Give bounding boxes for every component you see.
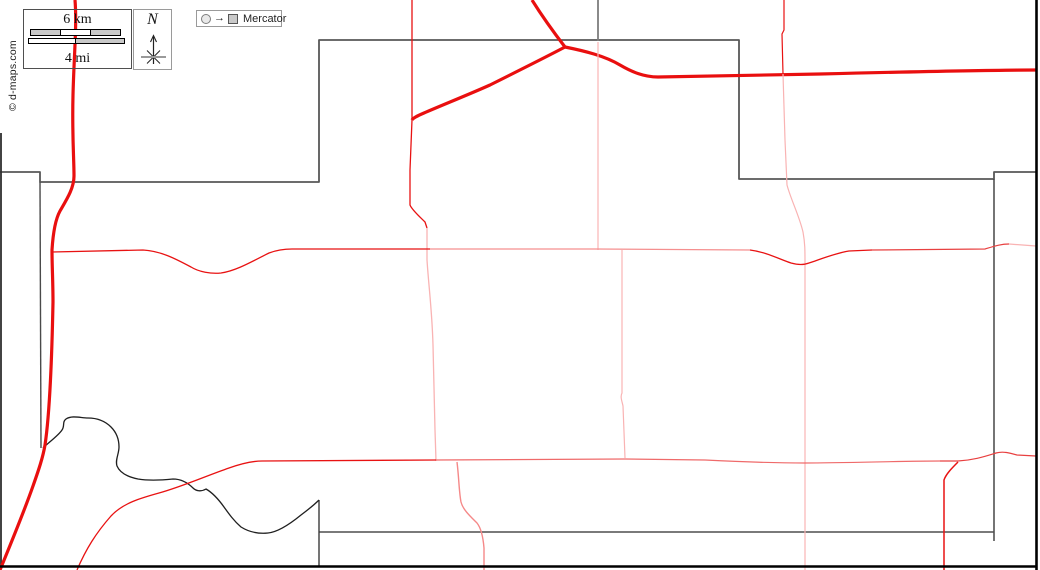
scale-segment — [31, 30, 61, 35]
road-major-diagonal — [412, 47, 565, 120]
road-major-east — [565, 47, 1036, 77]
road-medium-horizontal-south — [436, 459, 940, 463]
scale-mi-label: 4 mi — [24, 51, 131, 66]
road-minor-horizontal-dip — [750, 250, 872, 265]
scale-segment — [29, 39, 76, 43]
scale-bar-km — [30, 29, 121, 36]
scale-bar-mi — [28, 38, 125, 44]
road-faint-horizontal-east-end — [1009, 244, 1036, 246]
north-arrow-icon — [134, 33, 173, 70]
arrow-right-icon: → — [214, 11, 225, 26]
road-minor-vertical-se — [944, 462, 958, 570]
scale-segment — [76, 39, 124, 43]
road-faint-vertical-ne — [783, 74, 805, 570]
road-faint-vertical-center — [427, 228, 436, 461]
road-minor-horizontal-west — [52, 249, 430, 273]
layer-borders — [0, 0, 1037, 570]
river — [43, 417, 319, 533]
layer-boundaries — [0, 0, 1036, 567]
projection-legend: → Mercator — [196, 10, 282, 27]
road-minor-horizontal-south-east — [940, 452, 1036, 461]
map-root: © d-maps.com 6 km 4 mi N → Mercator — [0, 0, 1040, 570]
map-canvas — [0, 0, 1040, 570]
road-faint-vertical-south — [621, 250, 625, 458]
layer-water — [43, 417, 319, 533]
compass-legend: N — [133, 9, 172, 70]
scale-segment — [61, 30, 91, 35]
boundary-west-vertical — [40, 182, 41, 448]
circle-icon — [201, 14, 211, 24]
road-minor-horizontal-east — [872, 244, 1009, 250]
scale-km-label: 6 km — [24, 12, 131, 27]
copyright-text: © d-maps.com — [7, 40, 19, 111]
square-icon — [228, 14, 238, 24]
scale-segment — [91, 30, 120, 35]
scale-bar-legend: 6 km 4 mi — [23, 9, 132, 69]
projection-label: Mercator — [241, 13, 286, 25]
road-medium-horizontal-mid — [430, 249, 750, 250]
road-light-s-curve — [457, 462, 484, 570]
layer-roads — [0, 0, 1036, 570]
north-label: N — [134, 11, 171, 29]
road-minor-vertical-ne — [782, 0, 784, 74]
